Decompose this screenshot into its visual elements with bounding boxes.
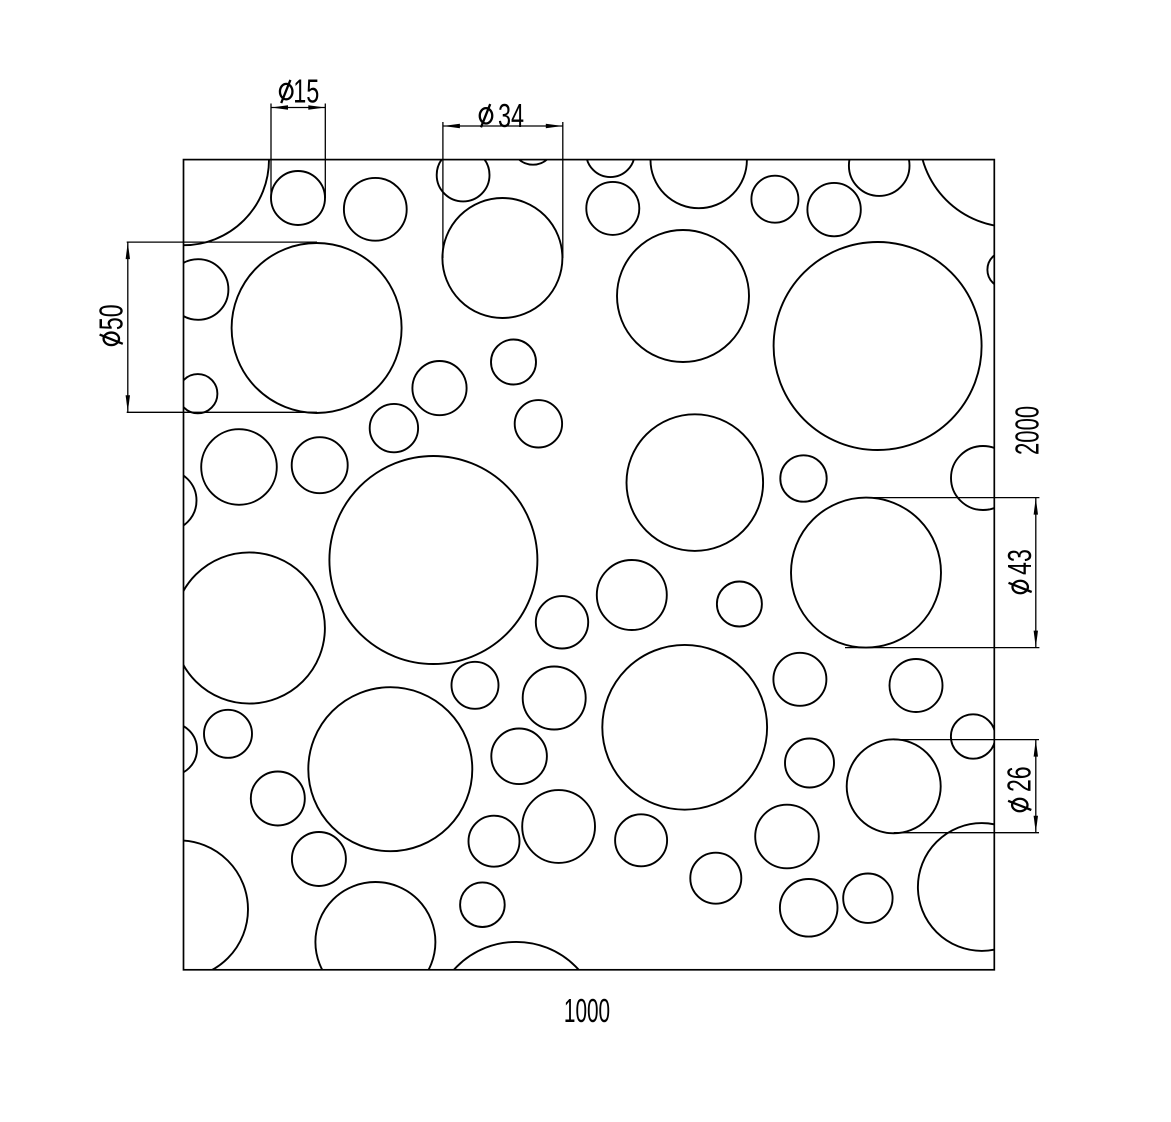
svg-text:34: 34 (498, 98, 524, 135)
svg-text:43: 43 (1002, 549, 1039, 575)
svg-text:15: 15 (293, 74, 319, 111)
svg-text:2000: 2000 (1009, 406, 1047, 455)
svg-text:50: 50 (94, 304, 131, 330)
svg-text:26: 26 (1002, 766, 1039, 792)
svg-text:1000: 1000 (564, 992, 610, 1029)
